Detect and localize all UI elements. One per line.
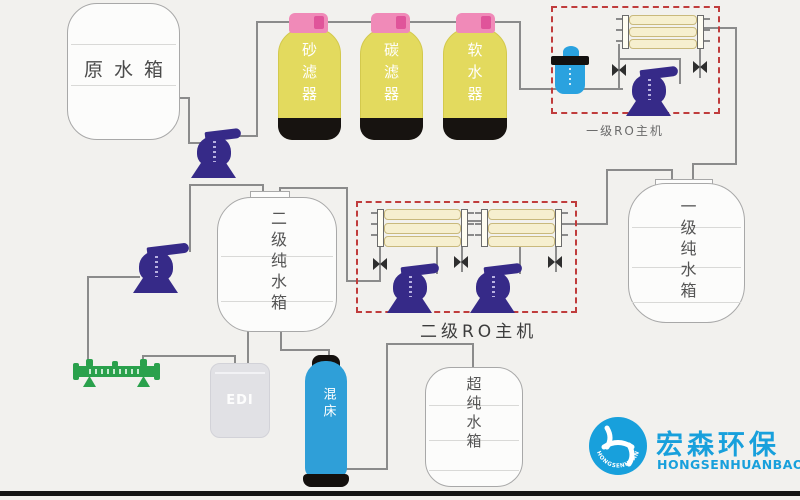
pure-water-pump-icon <box>133 241 179 293</box>
precision-filter <box>551 46 591 96</box>
sand-filter: 砂滤器 <box>278 28 341 140</box>
membrane-header <box>461 209 468 247</box>
ro2-pump-a-icon <box>387 261 433 313</box>
tank-level-line <box>71 44 176 45</box>
ro-membrane-bank <box>616 15 710 49</box>
company-name-en: HONGSENHUANBAO <box>657 457 800 472</box>
membrane-port-ticks <box>704 18 710 46</box>
softener-filter: 软水器 <box>443 28 507 140</box>
tank-level-line <box>71 85 176 86</box>
manifold-bar <box>75 366 158 377</box>
pipe <box>346 188 348 282</box>
valve-icon <box>373 258 387 271</box>
membrane-tubes <box>488 209 555 247</box>
membrane-tube <box>384 223 461 234</box>
stage1-pure-water-tank: 一级纯水箱 <box>628 183 745 323</box>
pump-base <box>133 278 178 293</box>
pipe <box>606 169 673 171</box>
membrane-port-ticks <box>562 212 568 244</box>
membrane-tube <box>384 236 461 247</box>
pipe <box>142 355 236 357</box>
ro1-highpressure-pump-icon <box>626 64 672 116</box>
membrane-header <box>481 209 488 247</box>
pipe <box>386 343 388 470</box>
membrane-tube <box>488 209 555 220</box>
membrane-tube <box>384 209 461 220</box>
use-point-manifold <box>73 362 163 390</box>
stage2-pure-water-tank-label: 二级纯水箱 <box>265 210 289 315</box>
pipe <box>280 330 282 351</box>
pipe <box>189 184 264 186</box>
ro2-pump-b-icon <box>470 261 516 313</box>
pump-base <box>387 298 432 313</box>
edi-highlight <box>215 372 265 374</box>
raw-water-tank-label: 原水箱 <box>73 55 174 82</box>
pump-body <box>476 271 510 302</box>
pipe <box>87 276 89 367</box>
pipe <box>693 163 737 165</box>
stage2-pure-water-tank: 二级纯水箱 <box>217 197 337 332</box>
ro-stage1-label: 一级RO主机 <box>570 122 680 139</box>
membrane-tube <box>629 27 697 37</box>
mixed-bed-label: 混床 <box>319 387 338 421</box>
membrane-tubes <box>384 209 461 247</box>
membrane-port-ticks <box>468 212 474 244</box>
pipe <box>386 343 474 345</box>
pump-base <box>470 298 515 313</box>
pipe <box>280 349 330 351</box>
pump-base <box>626 101 671 116</box>
ultra-pure-water-tank: 超纯水箱 <box>425 367 523 487</box>
raw-water-tank: 原水箱 <box>67 3 180 140</box>
stage1-pure-water-tank-label: 一级纯水箱 <box>675 198 699 303</box>
valve-icon <box>548 256 562 269</box>
bottom-border-line <box>0 491 800 496</box>
valve-icon <box>454 256 468 269</box>
filter-base <box>443 118 507 140</box>
pump-body <box>139 251 173 282</box>
filter-base <box>278 118 341 140</box>
sand-filter-label: 砂滤器 <box>299 42 320 108</box>
pipe <box>606 169 608 225</box>
edi-unit: EDI <box>210 363 270 438</box>
filter-cap <box>371 13 410 33</box>
pump-body <box>632 74 666 105</box>
pump-base <box>191 163 236 178</box>
pipe <box>472 343 474 368</box>
raw-water-pump-icon <box>191 126 237 178</box>
membrane-tubes <box>629 15 697 49</box>
pipe <box>247 330 249 365</box>
valve-icon <box>693 61 707 74</box>
filter-cap <box>456 13 495 33</box>
precision-filter-body <box>555 65 585 94</box>
membrane-tube <box>629 15 697 25</box>
softener-filter-label: 软水器 <box>465 42 486 108</box>
carbon-filter-label: 碳滤器 <box>381 42 402 108</box>
column-base <box>303 474 349 487</box>
edi-label: EDI <box>226 392 254 407</box>
ro-membrane-bank <box>371 209 474 247</box>
pipe <box>189 184 191 252</box>
membrane-header <box>377 209 384 247</box>
filter-cap <box>289 13 328 33</box>
membrane-header <box>697 15 704 49</box>
ro-membrane-bank <box>475 209 568 247</box>
membrane-tube <box>488 223 555 234</box>
valve-icon <box>612 64 626 77</box>
company-logo-emblem: HONGSENHUANBAO <box>588 416 648 476</box>
pump-body <box>393 271 427 302</box>
ultra-pure-water-tank-label: 超纯水箱 <box>464 376 485 452</box>
membrane-header <box>555 209 562 247</box>
pump-body <box>197 136 231 167</box>
manifold-foot <box>137 376 150 387</box>
filter-base <box>360 118 423 140</box>
process-flow-diagram: 原水箱 砂滤器 碳滤器 软水器 <box>0 0 800 500</box>
mixed-bed-column: 混床 <box>305 355 351 490</box>
ro-stage2-label: 二级RO主机 <box>420 317 537 342</box>
membrane-tube <box>488 236 555 247</box>
tank-level-line <box>429 470 519 471</box>
pipe <box>256 21 258 137</box>
carbon-filter: 碳滤器 <box>360 28 423 140</box>
membrane-header <box>622 15 629 49</box>
manifold-foot <box>83 376 96 387</box>
pipe <box>280 187 348 189</box>
pipe <box>188 97 190 144</box>
membrane-tube <box>629 39 697 49</box>
pipe <box>735 27 737 165</box>
precision-filter-band <box>551 56 589 65</box>
pipe <box>519 21 521 90</box>
